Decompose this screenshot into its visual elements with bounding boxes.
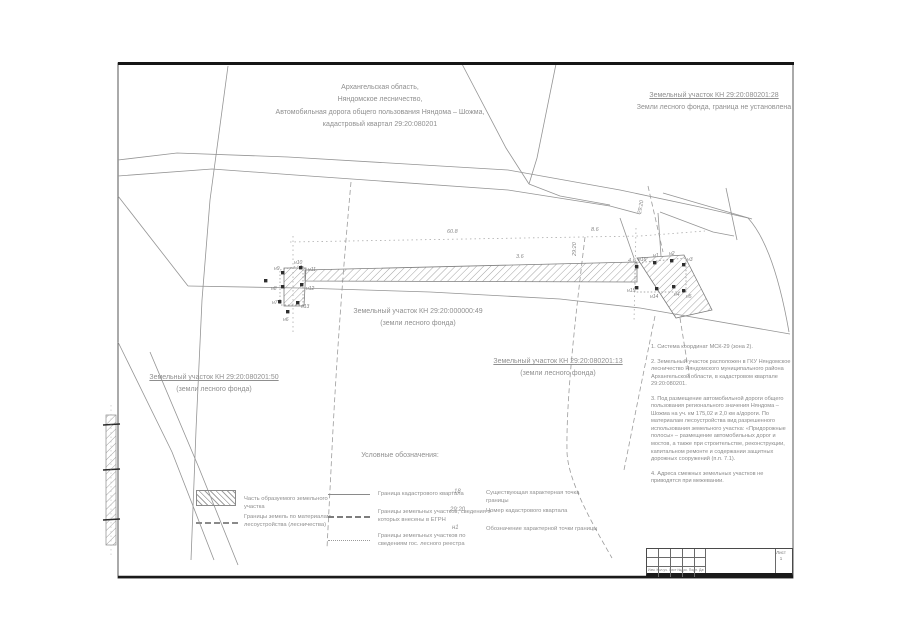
title-block-col-line (694, 549, 695, 577)
parcel-category: (земли лесного фонда) (487, 368, 629, 380)
title-block-col-line (670, 549, 671, 577)
parcel-category: (земли лесного фонда) (138, 384, 290, 396)
quarter-label: 29:20 (637, 199, 646, 216)
point-label: н1 (653, 253, 659, 259)
legend-heading: Условные обозначения: (330, 450, 470, 462)
legend-label: Граница кадастрового квартала (378, 491, 490, 499)
hatch-swatch (196, 490, 236, 506)
point-label: н13 (301, 304, 310, 310)
point-label: н11 (308, 267, 316, 273)
parcel-cadastral-number: Земельный участок КН 29:20:080201:13 (487, 356, 629, 368)
parcel-label-top-right: Земельный участок КН 29:20:080201:28 Зем… (628, 90, 800, 115)
allotment-band (305, 262, 637, 282)
point-label: н14 (650, 294, 659, 300)
point-label: н6 (283, 317, 289, 323)
point-label: н4 (674, 292, 680, 298)
dash-line-swatch (328, 516, 370, 518)
location-line: кадастровый квартал 29:20:080201 (240, 119, 520, 131)
sheet-number: 1 (772, 556, 790, 562)
title-block-divider (705, 549, 706, 573)
location-line: Няндомское лесничество, (240, 94, 520, 106)
point-label: н16 (638, 257, 647, 263)
title-block-col-line (682, 549, 683, 577)
parcel-label-center: Земельный участок КН 29:20:000000:49 (зе… (338, 306, 498, 331)
point-label: н7 (272, 300, 278, 306)
parcel-cadastral-number: Земельный участок КН 29:20:000000:49 (338, 306, 498, 318)
point-label: н2 (669, 251, 675, 257)
parcel-label-right: Земельный участок КН 29:20:080201:13 (зе… (487, 356, 629, 381)
point-label: н15 (627, 288, 636, 294)
frame-top-border (118, 62, 794, 65)
sheet-number-cell: Лист 1 (772, 550, 790, 563)
parcel-category: Земли лесного фонда, граница не установл… (628, 102, 800, 114)
legend-label: Существующая характерная точка границы (486, 490, 601, 505)
point-label: н10 (294, 260, 303, 266)
left-edge-strip (103, 405, 120, 555)
stamp-header-row: Изм. Кол.уч. Лист №док. Подп. Дата (648, 568, 704, 572)
point-label: н9 (274, 266, 280, 272)
note-item: 2. Земельный участок расположен в ГКУ Ня… (651, 359, 794, 389)
location-line: Архангельская область, (240, 82, 520, 94)
legend-label: Часть образуемого земельного участка (244, 496, 339, 511)
parcel-label-left: Земельный участок КН 29:20:080201:50 (зе… (138, 372, 290, 397)
parcel-cadastral-number: Земельный участок КН 29:20:080201:50 (138, 372, 290, 384)
dim-label: 60.8 (447, 229, 459, 235)
legend-label: Границы земельных участков по сведениям … (378, 533, 494, 548)
point-symbol: ·18 (452, 489, 461, 495)
drawing-sheet: н9 н10 н11 н8 н12 н7 н13 н6 н16 н1 н2 н3… (0, 0, 905, 640)
title-block-col-line (658, 549, 659, 577)
dim-label: 4.6 (628, 258, 637, 264)
dim-label: 3.6 (516, 254, 525, 260)
quarter-label: 29:20 (572, 241, 578, 257)
point-label: н5 (686, 294, 692, 300)
point-label: н12 (306, 286, 315, 292)
point-label: н3 (687, 257, 693, 263)
parcel-cadastral-number: Земельный участок КН 29:20:080201:28 (628, 90, 800, 102)
note-item: 4. Адреса смежных земельных участков не … (651, 471, 794, 486)
note-item: 3. Под размещение автомобильной дороги о… (651, 396, 794, 464)
location-heading: Архангельская область, Няндомское леснич… (240, 82, 520, 131)
dashdot-line-swatch (196, 522, 238, 524)
title-block-row-line (647, 557, 705, 558)
dim-label: 8.6 (591, 227, 600, 233)
point-label: н8 (271, 286, 277, 292)
dot-line-swatch (328, 540, 370, 541)
note-item: 1. Система координат МСК-29 (зона 2). (651, 344, 794, 352)
title-block: Изм. Кол.уч. Лист №док. Подп. Дата Лист … (646, 548, 793, 576)
legend-label: Обозначение характерной точки границы (486, 526, 601, 534)
thin-line-swatch (328, 494, 370, 495)
dimension-labels: 60.8 3.6 8.6 4.6 29:20 29:20 (447, 199, 646, 264)
legend-label: Номер кадастрового квартала (486, 508, 601, 516)
quarter-symbol: 29:20 (450, 507, 465, 513)
location-line: Автомобильная дорога общего пользования … (240, 107, 520, 119)
title-block-row-line (647, 566, 705, 567)
notes-block: 1. Система координат МСК-29 (зона 2). 2.… (651, 344, 794, 493)
new-point-symbol: н1 (452, 525, 459, 531)
legend-label: Границы земельных участков, сведения о к… (378, 509, 494, 524)
parcel-category: (земли лесного фонда) (338, 318, 498, 330)
